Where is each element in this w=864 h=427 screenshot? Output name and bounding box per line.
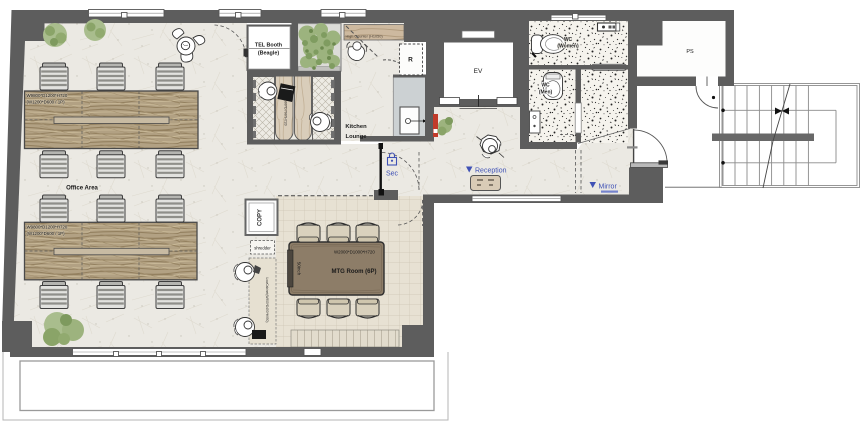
svg-text:PS: PS bbox=[686, 49, 694, 55]
svg-text:R: R bbox=[408, 57, 413, 64]
svg-text:W9800*D1200*H720: W9800*D1200*H720 bbox=[27, 225, 68, 230]
svg-text:Sec: Sec bbox=[386, 171, 399, 178]
svg-text:MTG Room (6P): MTG Room (6P) bbox=[332, 269, 377, 275]
svg-text:LowCabinet(W900*D450*H950): LowCabinet(W900*D450*H950) bbox=[265, 277, 269, 322]
svg-text:COPY: COPY bbox=[258, 209, 264, 226]
svg-text:WC: WC bbox=[564, 37, 573, 43]
svg-text:Mirror: Mirror bbox=[599, 184, 618, 191]
svg-text:Lounge: Lounge bbox=[346, 134, 368, 140]
svg-text:TEL Booth: TEL Booth bbox=[255, 43, 282, 49]
svg-text:(Men): (Men) bbox=[539, 90, 553, 96]
svg-text:(W1200*D600 / 1P): (W1200*D600 / 1P) bbox=[27, 231, 66, 236]
svg-text:(Beagle): (Beagle) bbox=[258, 51, 279, 57]
svg-text:W9800*D1200*H720: W9800*D1200*H720 bbox=[27, 93, 68, 98]
svg-text:(W1200*D600 / 1P): (W1200*D600 / 1P) bbox=[27, 100, 66, 105]
svg-text:High Counter (H1050): High Counter (H1050) bbox=[346, 35, 384, 39]
svg-text:(Women): (Women) bbox=[557, 44, 579, 50]
svg-text:Reception: Reception bbox=[475, 168, 507, 175]
svg-text:・: ・ bbox=[354, 130, 357, 134]
svg-text:Office Area: Office Area bbox=[66, 186, 98, 192]
svg-text:W2000*D1000*H720: W2000*D1000*H720 bbox=[334, 250, 375, 255]
svg-text:EV: EV bbox=[474, 68, 483, 75]
svg-text:50inch: 50inch bbox=[297, 262, 302, 276]
svg-text:WC: WC bbox=[541, 83, 550, 89]
svg-text:shredder: shredder bbox=[254, 246, 271, 251]
